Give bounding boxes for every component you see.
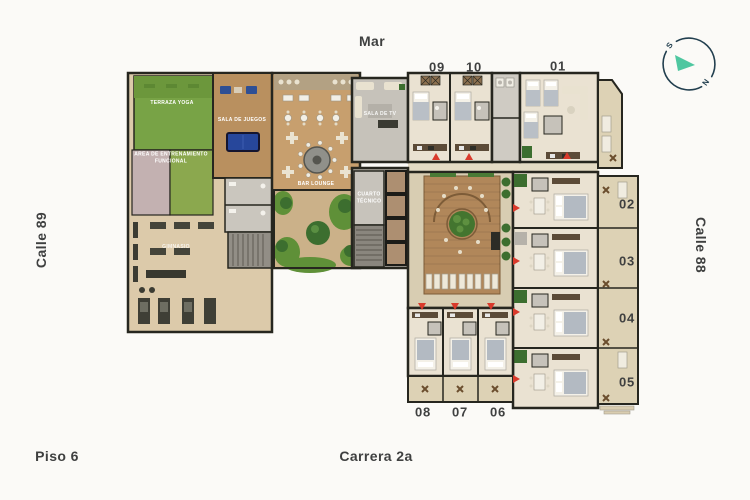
unit-01 xyxy=(520,73,598,162)
unit-number-06: 06 xyxy=(490,405,506,420)
area-label-terraza-yoga: TERRAZA YOGA xyxy=(150,100,193,106)
area-label-entrenamiento-funcional: AREA DE ENTRENAMIENTO FUNCIONAL xyxy=(133,151,209,165)
yoga-terrace xyxy=(134,76,213,150)
entrance-marker-unit-01 xyxy=(563,152,571,159)
utility-core xyxy=(492,73,520,162)
courtyard-tree xyxy=(447,209,477,239)
floor-label: Piso 6 xyxy=(35,448,79,464)
area-label-cuarto-tecnico: CUARTO TÉCNICO xyxy=(354,191,384,205)
floor-plan xyxy=(0,0,750,500)
entrance-marker-unit-05 xyxy=(513,375,520,383)
area-label-sala-de-tv: SALA DE TV xyxy=(364,111,397,117)
garden xyxy=(273,190,362,273)
entrance-marker-unit-06 xyxy=(487,303,495,310)
bar-terrace-block xyxy=(272,73,362,273)
unit-number-09: 09 xyxy=(429,60,445,75)
area-label-bar-lounge: BAR LOUNGE xyxy=(298,181,335,187)
compass-arrow xyxy=(675,55,695,71)
street-label-calle-88: Calle 88 xyxy=(693,217,709,273)
entrance-marker-unit-09 xyxy=(432,153,440,160)
street-label-calle-89: Calle 89 xyxy=(33,212,49,268)
entrance-marker-unit-04 xyxy=(513,308,520,316)
units-02-05 xyxy=(513,172,598,408)
stairs-left xyxy=(228,232,272,268)
unit-01-terrace xyxy=(598,80,622,168)
amenities-block xyxy=(128,73,272,332)
bottom-balconies xyxy=(408,376,513,402)
units-06-08 xyxy=(408,308,513,376)
entrance-marker-unit-03 xyxy=(513,257,520,265)
sea-label: Mar xyxy=(359,33,385,49)
unit-number-03: 03 xyxy=(619,254,635,269)
entrance-marker-unit-02 xyxy=(513,204,520,212)
unit-number-07: 07 xyxy=(452,405,468,420)
unit-number-05: 05 xyxy=(619,375,635,390)
street-label-carrera-2a: Carrera 2a xyxy=(339,448,412,464)
entrance-marker-unit-08 xyxy=(418,303,426,310)
area-label-gimnasio: GIMNASIO xyxy=(162,244,190,250)
entrance-marker-unit-10 xyxy=(465,153,473,160)
tv-room xyxy=(352,78,408,162)
floor-plan-page: Mar Calle 89 Calle 88 Piso 6 Carrera 2a … xyxy=(0,0,750,500)
core-block xyxy=(352,168,408,268)
unit-number-02: 02 xyxy=(619,197,635,212)
bathrooms xyxy=(225,178,272,232)
stairs-core xyxy=(354,225,384,267)
units-09-10 xyxy=(408,73,492,162)
courtyard xyxy=(408,172,513,308)
unit-number-04: 04 xyxy=(619,311,635,326)
game-room xyxy=(213,73,272,178)
area-label-sala-de-juegos: SALA DE JUEGOS xyxy=(218,117,266,123)
pergola xyxy=(274,74,358,90)
unit-number-01: 01 xyxy=(550,59,566,74)
loungers xyxy=(426,274,498,289)
unit-number-10: 10 xyxy=(466,60,482,75)
entrance-marker-unit-07 xyxy=(451,303,459,310)
unit-number-08: 08 xyxy=(415,405,431,420)
elevators xyxy=(386,171,406,265)
